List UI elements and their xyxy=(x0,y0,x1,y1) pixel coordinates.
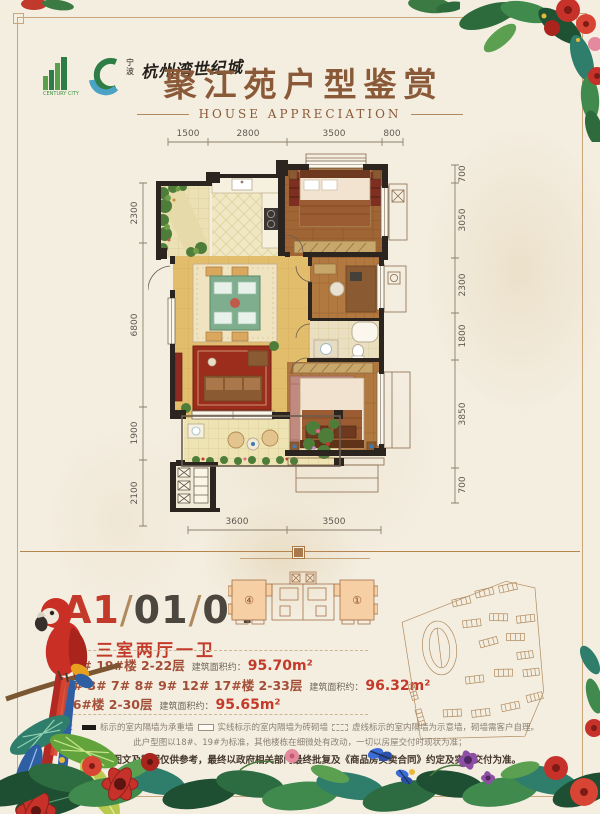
unit-code-sep: / xyxy=(189,588,203,632)
dim-label: 3050 xyxy=(457,198,469,242)
keyplan-unit-left: ④ xyxy=(244,594,254,607)
dim-label: 800 xyxy=(370,128,414,140)
section-divider-sub xyxy=(240,558,370,559)
area-value: 95.65m² xyxy=(216,697,281,713)
leaf-sprig-top-left xyxy=(20,0,80,18)
floorplan xyxy=(148,148,448,548)
dim-label: 3500 xyxy=(312,128,356,140)
dim-label: 1800 xyxy=(457,314,469,358)
leaf-sprig-top-middle xyxy=(404,0,460,22)
keyplan: ④ ① xyxy=(228,568,378,632)
dim-label: 2300 xyxy=(129,191,141,235)
area-value: 95.70m² xyxy=(248,658,313,674)
leaf-sprig-right-edge xyxy=(556,640,600,750)
area-caption: 建筑面积约： xyxy=(160,699,214,712)
dim-label: 6800 xyxy=(129,303,141,347)
keyplan-unit-right: ① xyxy=(352,594,362,607)
tropical-band-bottom xyxy=(0,726,600,814)
dim-label: 1900 xyxy=(129,411,141,455)
area-caption: 建筑面积约： xyxy=(309,680,363,693)
dim-label: 2300 xyxy=(457,263,469,307)
dining-area xyxy=(193,264,277,342)
divider-ornament xyxy=(293,547,304,558)
dim-label: 3850 xyxy=(457,392,469,436)
flower-cluster-top-right xyxy=(448,0,600,142)
dim-label: 1500 xyxy=(166,128,210,140)
poster: { "brand": { "name_en": "CENTURY CITY", … xyxy=(0,0,600,814)
butterfly-icons xyxy=(366,744,422,788)
dim-label: 2100 xyxy=(129,471,141,515)
dim-label: 700 xyxy=(457,463,469,507)
area-caption: 建筑面积约： xyxy=(192,660,246,673)
dim-label: 700 xyxy=(457,152,469,196)
dim-label: 2800 xyxy=(226,128,270,140)
